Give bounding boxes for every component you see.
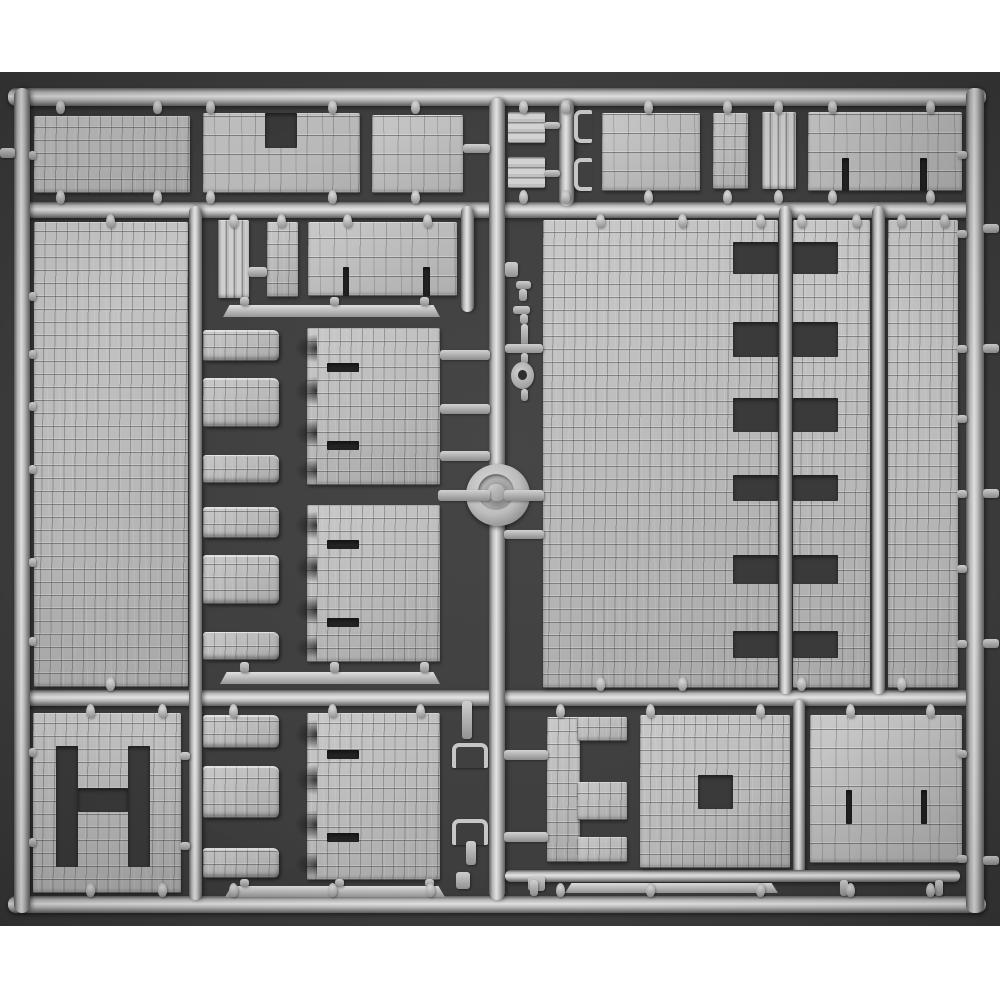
wall-panel-h-openings	[33, 713, 181, 893]
arrow-slit	[327, 363, 359, 372]
pin-bar-2	[466, 841, 476, 865]
connector-stub	[29, 558, 36, 567]
corbel-projection	[203, 715, 279, 748]
wall-panel-top-3	[372, 115, 463, 193]
corbel-projection	[203, 455, 279, 483]
wall-opening	[733, 322, 778, 357]
wall-panel-top-1	[34, 116, 190, 193]
connector-pin	[328, 704, 337, 718]
connector-stub	[957, 640, 967, 648]
knob-core	[488, 484, 505, 501]
connector-pin	[926, 190, 935, 204]
connector-stub	[240, 879, 249, 887]
wall-opening	[842, 158, 849, 191]
connector-pin	[678, 214, 687, 228]
bottom-right-runner	[793, 700, 805, 876]
connector-stub	[957, 415, 967, 423]
sprue-photo	[0, 72, 1000, 926]
connector-pin	[723, 190, 732, 204]
corbel-projection	[203, 848, 279, 878]
connector-stub	[957, 490, 967, 498]
connector-pin	[828, 190, 837, 204]
connector-stub	[420, 297, 429, 306]
connector-stub	[504, 530, 544, 539]
connector-pin	[106, 214, 115, 228]
wall-opening	[56, 746, 78, 867]
machicolation-panel-1	[203, 328, 440, 485]
connector-stub	[29, 350, 36, 359]
beam-strip-4	[565, 883, 778, 893]
connector-pin	[940, 214, 949, 228]
connector-pin	[646, 704, 655, 718]
wall-opening	[423, 267, 430, 296]
connector-pin	[423, 214, 432, 228]
connector-stub	[957, 750, 967, 758]
machicolation-wall	[307, 713, 440, 880]
connector-pin	[926, 704, 935, 718]
wall-panel-center-large	[543, 220, 778, 688]
connector-stub	[935, 880, 943, 896]
connector-pin	[596, 677, 605, 691]
hook-clip-2	[574, 158, 592, 191]
plank-bar-1	[508, 112, 545, 143]
bracket-arm	[577, 717, 627, 741]
beam-strip-1	[223, 305, 440, 317]
wall-panel-left-large	[34, 222, 188, 687]
wall-opening	[846, 790, 852, 824]
connector-pin	[774, 100, 783, 114]
wall-opening	[78, 788, 128, 812]
sprue-frame	[0, 72, 1000, 926]
connector-stub	[983, 224, 999, 233]
connector-pin	[926, 883, 935, 897]
wall-column-top-5	[713, 113, 748, 189]
wall-opening	[793, 322, 838, 357]
connector-pin	[206, 190, 215, 204]
chain-elbow-1	[516, 281, 531, 289]
top-mid-runner	[461, 206, 474, 312]
wall-panel-right-tall	[888, 220, 958, 688]
connector-stub	[0, 148, 15, 158]
connector-pin	[644, 190, 653, 204]
photo-page	[0, 0, 1000, 1000]
connector-stub	[29, 637, 36, 646]
connector-stub	[463, 144, 490, 153]
connector-pin	[158, 883, 167, 897]
wall-opening	[265, 113, 297, 148]
connector-pin	[343, 214, 352, 228]
bottom-sub-rail	[505, 870, 960, 882]
small-block-1	[456, 872, 470, 889]
connector-pin	[411, 100, 420, 114]
connector-pin	[556, 704, 565, 718]
connector-pin	[756, 704, 765, 718]
mid-runner-b	[872, 206, 885, 694]
connector-stub	[330, 662, 339, 673]
connector-stub	[440, 350, 490, 360]
machicolation-wall	[307, 328, 440, 485]
corbel-projection	[203, 632, 279, 660]
connector-stub	[248, 267, 267, 277]
left-mid-runner	[189, 206, 202, 900]
connector-pin	[86, 704, 95, 718]
connector-stub	[180, 752, 190, 760]
plank-door-mid	[218, 220, 249, 298]
wall-panel-top-4	[602, 113, 700, 191]
connector-pin	[897, 677, 906, 691]
chain-stem-1	[521, 324, 528, 346]
connector-pin	[206, 100, 215, 114]
right-rail	[966, 88, 984, 913]
connector-stub	[180, 842, 190, 850]
connector-pin	[229, 704, 238, 718]
corbel-projection	[203, 766, 279, 818]
chain-cross-stub	[505, 344, 543, 353]
corbel-projection	[203, 507, 279, 538]
connector-stub	[983, 344, 999, 353]
connector-pin	[756, 883, 765, 897]
connector-pin	[56, 190, 65, 204]
connector-pin	[229, 883, 238, 897]
connector-stub	[957, 151, 967, 159]
wall-opening	[698, 775, 733, 809]
connector-stub	[29, 292, 36, 301]
connector-pin	[416, 704, 425, 718]
arrow-slit	[327, 540, 359, 549]
connector-pin	[519, 100, 528, 114]
wall-opening	[793, 242, 838, 274]
connector-stub	[420, 662, 429, 673]
wall-panel-bottom-right	[810, 715, 962, 863]
arrow-slit	[327, 750, 359, 759]
hook-clip-1	[574, 110, 592, 143]
connector-pin	[86, 883, 95, 897]
connector-stub	[29, 151, 36, 160]
connector-pin	[426, 883, 435, 897]
connector-pin	[756, 214, 765, 228]
connector-pin	[229, 214, 238, 228]
corbel-projection	[203, 378, 279, 427]
connector-stub	[440, 451, 490, 461]
machicolation-panel-3	[203, 713, 440, 880]
wall-opening	[733, 398, 778, 432]
connector-stub	[240, 662, 249, 673]
connector-stub	[29, 402, 36, 411]
connector-pin	[897, 214, 906, 228]
connector-stub	[983, 639, 999, 648]
bracket-bar	[547, 717, 580, 862]
wall-opening	[793, 475, 838, 501]
connector-stub	[957, 855, 967, 863]
connector-pin	[797, 214, 806, 228]
connector-pin	[846, 704, 855, 718]
connector-stub	[504, 750, 548, 760]
chain-elbow-2	[513, 306, 530, 314]
pin-bar-1	[462, 701, 472, 739]
connector-pin	[277, 214, 286, 228]
wall-opening	[920, 158, 927, 191]
connector-pin	[846, 883, 855, 897]
connector-pin	[723, 100, 732, 114]
wall-opening	[733, 475, 778, 501]
connector-stub	[544, 122, 560, 129]
chain-eyelet	[511, 362, 534, 389]
connector-stub	[335, 879, 344, 887]
wall-panel-top-2-notched	[203, 113, 360, 193]
wall-opening	[793, 631, 838, 658]
wall-panel-top-6-gated	[808, 112, 962, 191]
chain-square	[505, 262, 518, 277]
connector-pin	[328, 190, 337, 204]
left-rail	[14, 88, 30, 913]
connector-pin	[678, 677, 687, 691]
arrow-slit	[327, 833, 359, 842]
wall-opening	[733, 242, 778, 274]
machicolation-wall	[307, 505, 440, 662]
connector-pin	[596, 214, 605, 228]
connector-stub	[29, 465, 36, 474]
connector-pin	[158, 704, 167, 718]
connector-pin	[328, 883, 337, 897]
wall-opening	[793, 398, 838, 432]
connector-stub	[544, 170, 560, 177]
arrow-slit	[327, 618, 359, 627]
connector-stub	[330, 297, 339, 306]
connector-stub	[438, 490, 490, 501]
bracket-panel-e	[547, 717, 627, 862]
wall-opening	[733, 631, 778, 658]
connector-pin	[561, 100, 570, 114]
connector-stub	[983, 856, 999, 865]
corbel-projection	[203, 555, 279, 604]
window-panel-square	[640, 715, 790, 868]
wall-panel-center-right	[793, 220, 870, 688]
beam-strip-2	[220, 672, 440, 684]
connector-pin	[519, 190, 528, 204]
machicolation-panel-2	[203, 505, 440, 662]
corbel-projection	[203, 330, 279, 361]
connector-pin	[774, 190, 783, 204]
bracket-arm	[577, 837, 627, 862]
connector-pin	[153, 190, 162, 204]
connector-stub	[957, 565, 967, 573]
wall-block-mid	[267, 222, 298, 297]
connector-pin	[106, 677, 115, 691]
wall-opening	[343, 267, 349, 296]
wall-opening	[793, 555, 838, 584]
connector-pin	[828, 100, 837, 114]
bracket-arm	[577, 782, 627, 820]
connector-pin	[56, 100, 65, 114]
connector-pin	[411, 190, 420, 204]
connector-pin	[646, 883, 655, 897]
connector-stub	[29, 748, 36, 757]
connector-pin	[556, 883, 565, 897]
connector-stub	[240, 297, 249, 306]
connector-stub	[530, 880, 538, 896]
mid-runner-a	[779, 206, 792, 694]
connector-pin	[926, 100, 935, 114]
connector-pin	[797, 677, 806, 691]
plank-door-top	[762, 112, 796, 189]
connector-stub	[504, 490, 544, 501]
connector-pin	[153, 100, 162, 114]
connector-pin	[852, 214, 861, 228]
connector-stub	[957, 230, 967, 238]
chain-elbow-1b	[519, 289, 527, 301]
wall-panel-mid-gated	[308, 222, 457, 296]
connector-stub	[957, 345, 967, 353]
connector-pin	[644, 100, 653, 114]
plank-bar-2	[508, 157, 545, 188]
hook-clip-3	[452, 743, 488, 768]
chain-stem-3	[521, 389, 528, 401]
wall-opening	[128, 746, 150, 867]
connector-pin	[561, 190, 570, 204]
arrow-slit	[327, 441, 359, 450]
connector-stub	[504, 832, 548, 842]
connector-pin	[328, 100, 337, 114]
connector-stub	[440, 404, 490, 414]
wall-opening	[733, 555, 778, 584]
connector-stub	[983, 489, 999, 498]
chain-elbow-2b	[520, 314, 528, 324]
connector-stub	[29, 838, 36, 847]
wall-opening	[921, 790, 927, 824]
